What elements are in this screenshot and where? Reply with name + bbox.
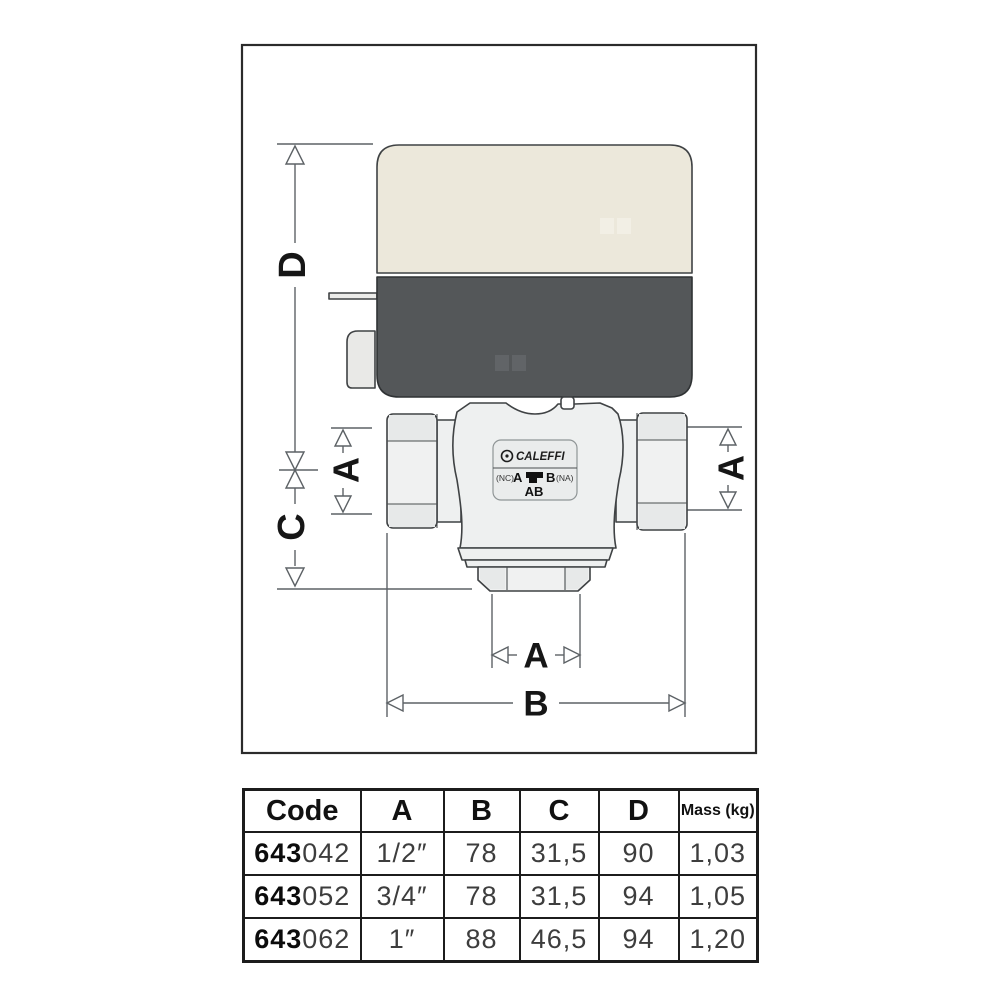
code-suffix: 042 (302, 838, 350, 868)
cell-a: 3/4″ (361, 875, 444, 918)
actuator-lower-housing (377, 277, 692, 397)
dim-label-d: D (272, 251, 314, 278)
manual-lever-pin (329, 293, 377, 299)
hex-nut-left (387, 414, 437, 528)
cell-a: 1″ (361, 918, 444, 962)
dim-label-b-bottom: B (523, 685, 548, 724)
header-a: A (361, 790, 444, 833)
code-suffix: 052 (302, 881, 350, 911)
header-c: C (520, 790, 599, 833)
cell-b: 88 (444, 918, 520, 962)
port-a-text: A (513, 470, 523, 485)
actuator-highlight (600, 218, 614, 234)
port-nc-text: (NC) (496, 473, 514, 483)
cell-c: 31,5 (520, 832, 599, 875)
cell-c: 31,5 (520, 875, 599, 918)
cell-mass: 1,05 (679, 875, 758, 918)
dim-label-a-right: A (711, 455, 752, 481)
caleffi-logo-icon-dot (505, 454, 508, 457)
dim-label-a-left: A (326, 457, 367, 483)
cell-code: 643042 (244, 832, 361, 875)
bottom-flange-lower (465, 560, 607, 567)
table-row: 643062 1″ 88 46,5 94 1,20 (244, 918, 758, 962)
cell-code: 643062 (244, 918, 361, 962)
port-b-text: B (546, 470, 555, 485)
cell-mass: 1,20 (679, 918, 758, 962)
cell-d: 94 (599, 918, 679, 962)
actuator (329, 145, 692, 397)
header-code: Code (244, 790, 361, 833)
cell-b: 78 (444, 832, 520, 875)
code-prefix: 643 (254, 924, 302, 954)
code-prefix: 643 (254, 881, 302, 911)
table-header-row: Code A B C D Mass (kg) (244, 790, 758, 833)
port-na-text: (NA) (556, 473, 574, 483)
bottom-flange-upper (458, 548, 613, 560)
port-ab-text: AB (525, 484, 544, 499)
top-notch (561, 397, 574, 409)
actuator-highlight (495, 355, 509, 371)
table-row: 643042 1/2″ 78 31,5 90 1,03 (244, 832, 758, 875)
valve-schematic-icon (529, 478, 537, 483)
dim-label-c: C (271, 513, 313, 540)
cell-c: 46,5 (520, 918, 599, 962)
code-prefix: 643 (254, 838, 302, 868)
dim-label-a-bottom: A (523, 637, 548, 676)
actuator-highlight (512, 355, 526, 371)
header-mass: Mass (kg) (679, 790, 758, 833)
actuator-side-tab (347, 331, 375, 388)
cell-mass: 1,03 (679, 832, 758, 875)
cell-b: 78 (444, 875, 520, 918)
cell-code: 643052 (244, 875, 361, 918)
brand-text: CALEFFI (516, 451, 565, 463)
actuator-upper-housing (377, 145, 692, 273)
header-b: B (444, 790, 520, 833)
table-row: 643052 3/4″ 78 31,5 94 1,05 (244, 875, 758, 918)
caleffi-label-plate: CALEFFI (NC) A B (NA) AB (493, 440, 577, 500)
actuator-highlight (617, 218, 631, 234)
spec-table: Code A B C D Mass (kg) 643042 1/2″ 78 31… (242, 788, 759, 963)
header-d: D (599, 790, 679, 833)
valve-schematic-icon (526, 472, 543, 478)
cell-d: 94 (599, 875, 679, 918)
code-suffix: 062 (302, 924, 350, 954)
cell-a: 1/2″ (361, 832, 444, 875)
cell-d: 90 (599, 832, 679, 875)
hex-nut-right (637, 413, 687, 530)
hex-nut-bottom (478, 567, 590, 591)
